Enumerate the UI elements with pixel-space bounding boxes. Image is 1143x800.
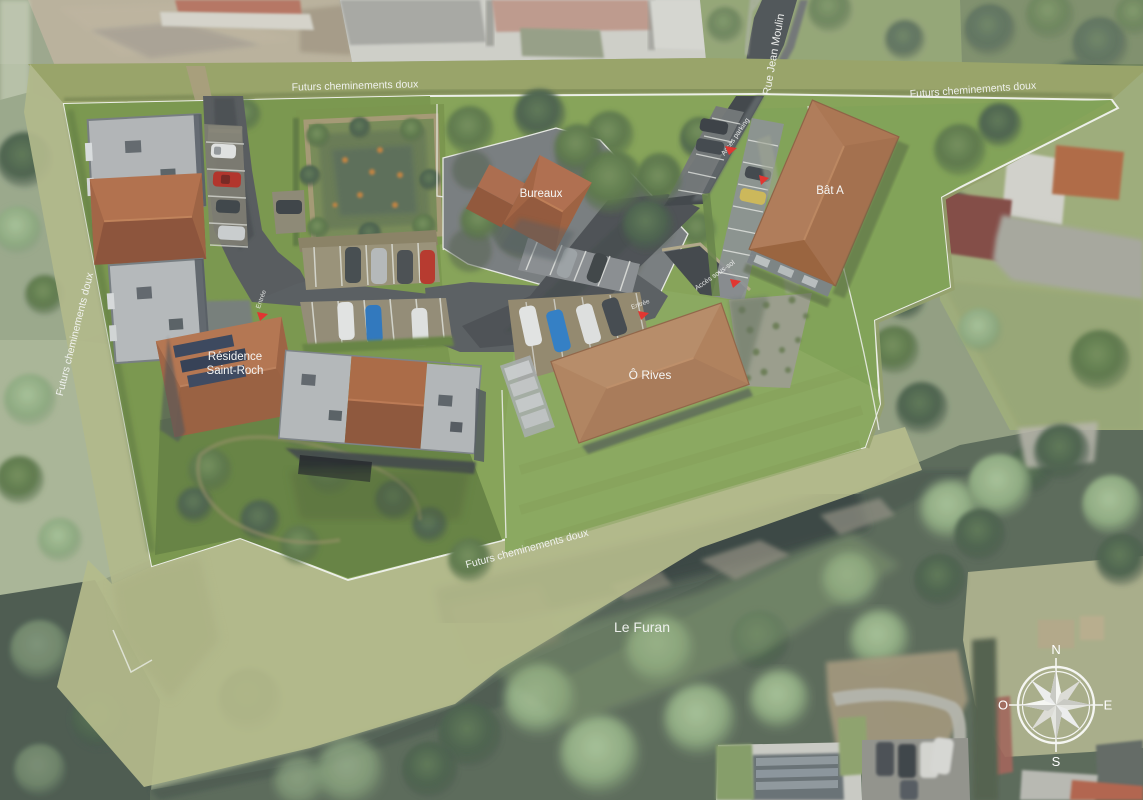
svg-text:O: O <box>998 698 1008 713</box>
svg-text:E: E <box>1104 698 1113 713</box>
svg-text:S: S <box>1052 754 1061 769</box>
svg-text:N: N <box>1051 642 1060 657</box>
